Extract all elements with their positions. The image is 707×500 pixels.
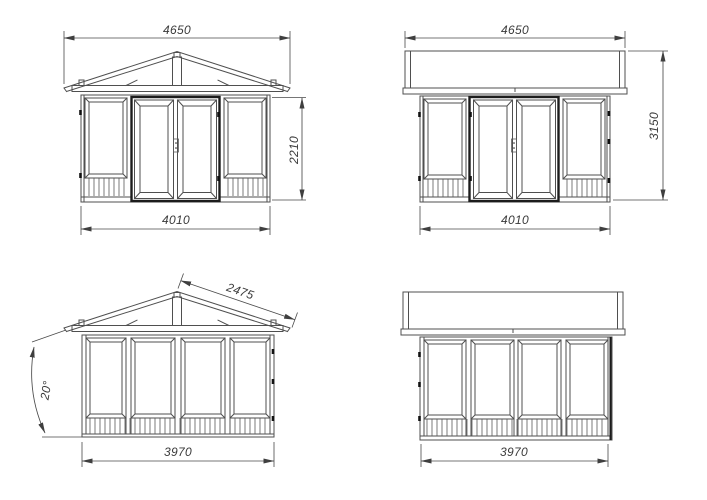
rear-base-width-label: 4010	[501, 213, 529, 227]
eave-side-roof	[401, 292, 625, 335]
side-window-4	[230, 338, 270, 418]
rear-roof	[403, 51, 627, 94]
rear-left-slat-siding	[428, 179, 463, 197]
rear-door-frame	[470, 97, 559, 201]
gable-side-elevation-view: 2475 20° 3970	[32, 274, 298, 468]
technical-drawing-canvas: 4650 2210 4010 4650 3150 4010	[0, 0, 707, 500]
rear-right-slat-siding	[567, 179, 602, 197]
front-gable-roof	[64, 52, 290, 92]
eave-side-base-width-label: 3970	[500, 445, 528, 459]
front-door-left-leaf	[135, 100, 174, 199]
side-gable-roof	[64, 292, 290, 332]
rear-total-height-label: 3150	[647, 112, 661, 140]
side-window-3	[181, 338, 225, 418]
front-door-frame	[132, 97, 220, 201]
eave-side-window-4	[566, 340, 608, 419]
side-extension-lines	[32, 274, 298, 468]
side-base-width-label: 3970	[164, 445, 192, 459]
eave-side-window-1	[424, 340, 466, 419]
rear-door-left-leaf	[474, 100, 513, 199]
rear-hinge-marks	[420, 111, 610, 183]
rear-wall-frame	[420, 96, 610, 202]
side-slat-siding	[90, 418, 265, 434]
side-roof-angle-label: 20°	[37, 380, 54, 402]
front-right-slat-siding	[228, 178, 263, 196]
elevation-drawing: 4650 2210 4010 4650 3150 4010	[0, 0, 707, 500]
front-door-right-leaf	[178, 100, 217, 199]
eave-side-wall-frame	[420, 337, 612, 440]
rear-elevation-view: 4650 3150 4010	[403, 23, 668, 235]
front-elevation-view: 4650 2210 4010	[64, 23, 306, 235]
side-window-1	[86, 338, 126, 418]
front-roof-width-label: 4650	[163, 23, 191, 37]
front-base-width-label: 4010	[162, 213, 190, 227]
front-left-slat-siding	[89, 178, 124, 196]
eave-side-window-2	[471, 340, 514, 419]
rear-left-window	[424, 99, 466, 179]
rear-extension-lines	[405, 31, 668, 235]
front-hinge-marks	[81, 110, 219, 181]
front-right-window	[224, 98, 266, 178]
side-roof-slope-label: 2475	[224, 280, 256, 303]
front-left-window	[85, 98, 127, 178]
side-window-2	[131, 338, 175, 418]
rear-roof-width-label: 4650	[501, 23, 529, 37]
eave-side-window-3	[518, 340, 561, 419]
rear-door-right-leaf	[517, 100, 556, 199]
front-wall-height-label: 2210	[287, 136, 301, 165]
eave-side-elevation-view: 3970	[401, 292, 625, 467]
rear-right-window	[563, 99, 605, 179]
